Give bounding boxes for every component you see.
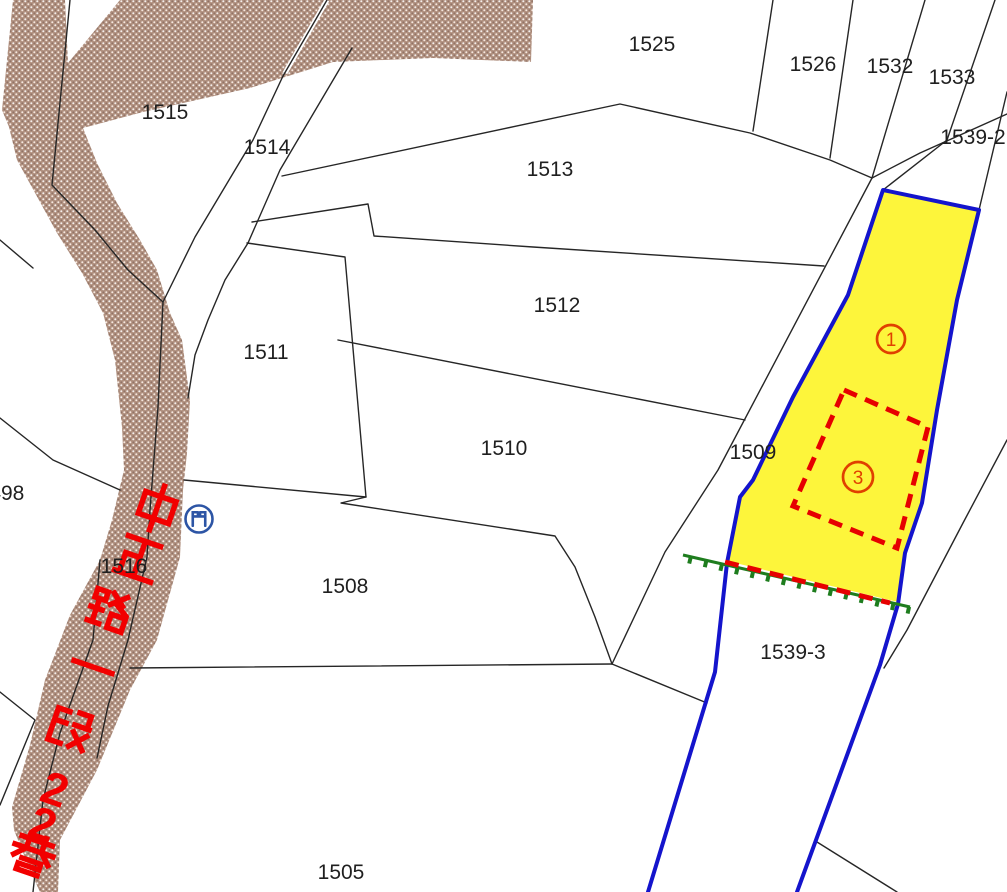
parcel-boundary-1513-north <box>282 104 872 178</box>
parcel-boundary-1532-east <box>872 0 925 178</box>
fence-tick <box>892 603 894 610</box>
parcel-label-1510: 1510 <box>481 437 528 460</box>
parcel-label-1508: 1508 <box>322 575 369 598</box>
fence-tick <box>720 564 722 571</box>
parcel-boundary-1539-2-east <box>979 92 1007 210</box>
circled-number-1-value: 1 <box>886 330 897 351</box>
parcel-label-1516: 1516 <box>101 555 148 578</box>
fence-tick <box>783 578 785 585</box>
parcel-label-1509: 1509 <box>730 441 777 464</box>
parcel-boundary-left-small <box>0 240 33 268</box>
parcel-boundary-1513-south <box>252 204 824 266</box>
parcel-label-1539-2: 1539-2 <box>940 126 1005 149</box>
map-canvas: 1 3 2 2 1525 1526 1 <box>0 0 1007 892</box>
cadastral-map: 1 3 2 2 1525 1526 1 <box>0 0 1007 892</box>
parcel-boundary-1510-south <box>341 497 612 664</box>
parcel-label-1526: 1526 <box>790 53 837 76</box>
parcel-boundary-1498 <box>0 418 120 490</box>
parcel-boundary-1508-south <box>130 664 707 703</box>
gate-symbol-ring <box>186 506 213 533</box>
parcel-label-1525: 1525 <box>629 33 676 56</box>
road-surface-polygon <box>2 0 533 892</box>
parcel-label-1515: 1515 <box>142 101 189 124</box>
parcel-label-1512: 1512 <box>534 294 581 317</box>
fence-tick <box>767 575 769 582</box>
circled-number-3-value: 3 <box>853 468 864 489</box>
parcel-boundary-1525-east <box>753 0 773 131</box>
parcel-label-1533: 1533 <box>929 66 976 89</box>
fence-tick <box>705 560 707 567</box>
parcel-label-1498: 1498 <box>0 482 24 505</box>
parcel-boundary-bottom-right <box>817 842 897 892</box>
fence-tick <box>876 600 878 607</box>
parcel-label-1514: 1514 <box>244 136 291 159</box>
road-network <box>2 0 533 892</box>
parcel-label-1513: 1513 <box>527 158 574 181</box>
gate-symbol <box>186 506 213 533</box>
parcel-label-1532: 1532 <box>867 55 914 78</box>
parcel-boundary-1533-east <box>883 0 995 190</box>
parcel-boundary-1526-east <box>830 0 853 158</box>
parcel-boundary-1511-box <box>184 243 366 497</box>
fence-tick <box>908 607 910 614</box>
fence-tick <box>752 571 754 578</box>
fence-tick <box>736 568 738 575</box>
parcel-boundary-1512-south <box>338 340 745 420</box>
parcel-label-1539-3: 1539-3 <box>760 641 825 664</box>
fence-tick <box>689 557 691 564</box>
parcel-label-1511: 1511 <box>243 341 288 364</box>
fence-tick <box>830 589 832 596</box>
highlight-parcel <box>648 190 979 892</box>
parcel-label-1505: 1505 <box>318 861 365 884</box>
